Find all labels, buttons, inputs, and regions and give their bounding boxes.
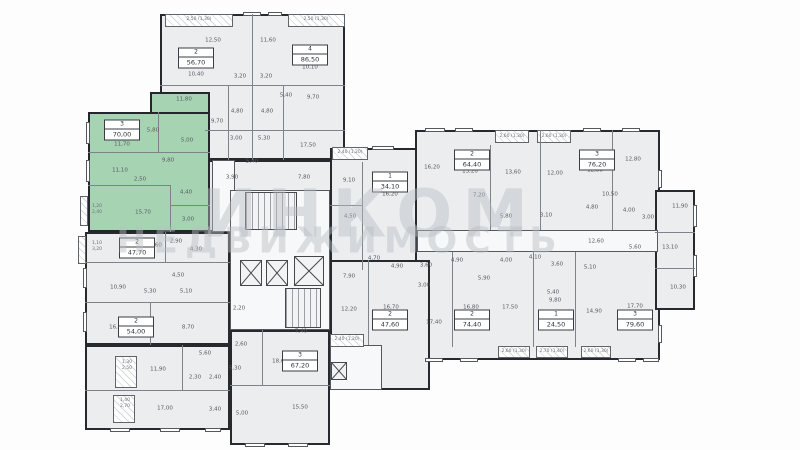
room-area-label: 5,80 <box>500 214 512 221</box>
elevator-icon <box>294 256 324 286</box>
window <box>658 325 662 343</box>
room-area-label: 2,30 <box>189 375 201 382</box>
room-area-label: 3,00 <box>230 136 242 143</box>
interior-wall <box>160 85 252 86</box>
room-area-label: 8,70 <box>182 325 194 332</box>
window <box>205 428 221 432</box>
apartment-label[interactable]: 256,70 <box>178 48 214 69</box>
interior-wall <box>170 205 210 206</box>
window <box>86 160 90 182</box>
elevator-icon <box>331 362 347 380</box>
room-area-label: 7,80 <box>298 175 310 182</box>
apartment-number: 2 <box>120 239 154 248</box>
apartment-area: 56,70 <box>179 58 213 68</box>
room-area-label: 11,60 <box>260 38 276 45</box>
interior-wall <box>612 130 613 230</box>
room-area-label: 2,90 <box>170 239 182 246</box>
apartment-area: 34,10 <box>373 182 407 192</box>
window <box>110 428 130 432</box>
apartment-number: 1 <box>373 173 407 182</box>
apartment-label[interactable]: 370,00 <box>104 120 140 141</box>
room-area-label: 12,50 <box>205 38 221 45</box>
window <box>160 428 180 432</box>
room-area-label: 4,50 <box>344 214 356 221</box>
room-area-label: 5,10 <box>584 265 596 272</box>
apartment-number: 3 <box>618 311 652 320</box>
window <box>455 128 473 132</box>
balcony-area-label: 1,30 2,50 <box>122 360 132 372</box>
room-area-label: 5,10 <box>180 289 192 296</box>
apartment-label[interactable]: 274,40 <box>454 310 490 331</box>
room-area-label: 7,20 <box>473 193 485 200</box>
balcony-area-label: 2,50 (1,30) <box>304 17 329 23</box>
room-area-label: 5,30 <box>144 289 156 296</box>
window <box>83 268 87 288</box>
room-area-label: 9,70 <box>307 95 319 102</box>
room-area-label: 12,60 <box>588 239 604 246</box>
room-area-label: 11,80 <box>176 97 192 104</box>
room-area-label: 2,60 <box>235 342 247 349</box>
room-area-label: 5,40 <box>280 93 292 100</box>
apartment-area: 79,60 <box>618 320 652 330</box>
window <box>693 255 697 277</box>
room-area-label: 3,90 <box>226 175 238 182</box>
window <box>268 12 282 16</box>
balcony-area-label: 2,60 (1,30) <box>502 349 527 355</box>
interior-wall <box>490 145 491 230</box>
room-area-label: 12,80 <box>625 157 641 164</box>
room-area-label: 13,10 <box>662 245 678 252</box>
balcony-area-label: 1,10 3,20 <box>92 241 102 253</box>
window <box>425 128 445 132</box>
balcony-area-label: 1,20 2,40 <box>92 204 102 216</box>
floor-plan-canvas: 10,4012,5011,803,203,2011,6010,105,409,7… <box>0 0 800 450</box>
elevator-icon <box>240 260 262 286</box>
balcony-area-label: 1,40 2,70 <box>120 398 130 410</box>
interior-wall <box>330 205 362 206</box>
room-area-label: 5,40 <box>547 290 559 297</box>
room-area-label: 17,50 <box>300 143 316 150</box>
room-area-label: 3,60 <box>551 262 563 269</box>
window <box>618 358 636 362</box>
balcony-area-label: 2,60 (1,30) <box>500 134 525 140</box>
apartment-label[interactable]: 264,40 <box>454 150 490 171</box>
room-area-label: 3,10 <box>540 213 552 220</box>
room-area-label: 10,50 <box>602 192 618 199</box>
room-area-label: 12,00 <box>547 171 563 178</box>
room-area-label: 4,80 <box>586 205 598 212</box>
window <box>245 443 265 447</box>
window <box>86 122 90 144</box>
balcony-area-label: 2,60 (1,30) <box>584 349 609 355</box>
apartment-number: 2 <box>179 49 213 58</box>
room-area-label: 4,10 <box>529 255 541 262</box>
room-area-label: 4,90 <box>451 258 463 265</box>
interior-wall <box>252 14 253 160</box>
stairs-icon <box>245 192 297 230</box>
room-area-label: 11,10 <box>112 168 128 175</box>
room-area-label: 3,20 <box>260 74 272 81</box>
room-area-label: 5,00 <box>181 138 193 145</box>
room-area-label: 11,90 <box>672 204 688 211</box>
room-area-label: 11,90 <box>150 367 166 374</box>
apartment-label[interactable]: 367,20 <box>282 351 318 372</box>
interior-wall <box>655 268 695 269</box>
room-area-label: 3,00 <box>642 215 654 222</box>
apartment-number: 2 <box>373 311 407 320</box>
window <box>288 443 308 447</box>
room-area-label: 10,10 <box>302 65 318 72</box>
balcony-area-label: 2,40 (1,20) <box>338 150 363 156</box>
window <box>583 128 601 132</box>
room-area-label: 4,90 <box>391 264 403 271</box>
room-area-label: 3,20 <box>234 74 246 81</box>
apartment-area: 47,70 <box>120 248 154 258</box>
balcony <box>78 236 86 264</box>
apartment-label[interactable]: 486,50 <box>292 45 328 66</box>
window <box>372 146 394 150</box>
window <box>460 358 478 362</box>
apartment-number: 3 <box>283 352 317 361</box>
apartment-label[interactable]: 376,20 <box>579 150 615 171</box>
apartment-area: 67,20 <box>283 361 317 371</box>
apartment-label[interactable]: 379,60 <box>617 310 653 331</box>
room-area-label: 5,80 <box>147 128 159 135</box>
apartment-label[interactable]: 247,60 <box>372 310 408 331</box>
window <box>643 358 659 362</box>
room-area-label: 7,40 <box>295 329 307 336</box>
balcony-area-label: 2,50 (1,30) <box>187 17 212 23</box>
interior-wall <box>452 252 453 347</box>
room-area-label: 4,00 <box>623 208 635 215</box>
room-area-label: 10,30 <box>670 285 686 292</box>
interior-wall <box>362 162 363 270</box>
room-area-label: 15,70 <box>135 210 151 217</box>
interior-wall <box>88 185 170 186</box>
room-area-label: 16,20 <box>424 165 440 172</box>
apartment-number: 2 <box>455 151 489 160</box>
interior-wall <box>165 232 166 262</box>
interior-wall <box>85 302 230 303</box>
interior-wall <box>85 262 230 263</box>
apartment-area: 24,50 <box>539 320 573 330</box>
interior-wall <box>205 130 345 131</box>
room-area-label: 9,70 <box>211 119 223 126</box>
room-area-label: 4,70 <box>368 256 380 263</box>
room-area-label: 4,00 <box>500 258 512 265</box>
room-area-label: 4,40 <box>180 190 192 197</box>
room-area-label: 10,40 <box>188 72 204 79</box>
room-area-label: 3,00 <box>182 217 194 224</box>
block-apartment-1-34 <box>330 148 418 270</box>
interior-wall <box>533 252 534 347</box>
room-area-label: 2,20 <box>233 306 245 313</box>
balcony-area-label: 2,60 (1,30) <box>542 134 567 140</box>
room-area-label: 3,60 <box>420 263 432 270</box>
apartment-number: 3 <box>105 121 139 130</box>
room-area-label: 13,60 <box>505 170 521 177</box>
apartment-number: 3 <box>580 151 614 160</box>
apartment-area: 47,60 <box>373 320 407 330</box>
window <box>658 170 662 188</box>
room-area-label: 4,50 <box>172 273 184 280</box>
room-area-label: 2,50 <box>134 177 146 184</box>
interior-wall <box>230 385 330 386</box>
room-area-label: 5,40 <box>246 159 258 166</box>
room-area-label: 4,80 <box>231 109 243 116</box>
interior-wall <box>88 152 210 153</box>
room-area-label: 5,60 <box>629 245 641 252</box>
interior-wall <box>368 260 369 345</box>
balcony <box>80 196 88 226</box>
room-area-label: 5,60 <box>199 351 211 358</box>
apartment-area: 70,00 <box>105 130 139 140</box>
room-area-label: 10,90 <box>110 285 126 292</box>
room-area-label: 5,30 <box>229 366 241 373</box>
room-area-label: 14,90 <box>586 309 602 316</box>
window <box>425 358 443 362</box>
room-area-label: 4,80 <box>261 109 273 116</box>
apartment-area: 76,20 <box>580 160 614 170</box>
room-area-label: 17,50 <box>502 305 518 312</box>
room-area-label: 17,00 <box>157 406 173 413</box>
apartment-area: 64,40 <box>455 160 489 170</box>
interior-wall <box>228 85 229 160</box>
apartment-number: 1 <box>539 311 573 320</box>
window <box>622 128 640 132</box>
balcony-area-label: 2,40 (1,20) <box>335 337 360 343</box>
room-area-label: 12,20 <box>341 307 357 314</box>
room-area-label: 7,90 <box>343 274 355 281</box>
room-area-label: 4,30 <box>190 247 202 254</box>
room-area-label: 5,00 <box>236 411 248 418</box>
apartment-label[interactable]: 134,10 <box>372 172 408 193</box>
window <box>83 312 87 332</box>
balcony-area-label: 2,70 (1,40) <box>540 349 565 355</box>
room-area-label: 3,00 <box>418 283 430 290</box>
apartment-area: 74,40 <box>455 320 489 330</box>
room-area-label: 3,40 <box>209 407 221 414</box>
stairs-icon <box>285 288 321 328</box>
room-area-label: 9,80 <box>549 298 561 305</box>
apartment-number: 2 <box>119 318 153 327</box>
apartment-label[interactable]: 247,70 <box>119 238 155 259</box>
interior-wall <box>252 85 345 86</box>
elevator-icon <box>266 260 288 286</box>
room-area-label: 16,20 <box>382 192 398 199</box>
apartment-area: 86,50 <box>293 55 327 65</box>
room-area-label: 2,40 <box>209 375 221 382</box>
apartment-number: 4 <box>293 46 327 55</box>
apartment-label[interactable]: 254,00 <box>118 317 154 338</box>
room-area-label: 9,10 <box>343 178 355 185</box>
interior-wall <box>85 390 230 391</box>
apartment-number: 2 <box>455 311 489 320</box>
room-area-label: 15,50 <box>292 405 308 412</box>
interior-wall <box>575 252 576 347</box>
room-area-label: 5,30 <box>258 136 270 143</box>
interior-wall <box>655 232 695 233</box>
apartment-label[interactable]: 124,50 <box>538 310 574 331</box>
apartment-area: 54,00 <box>119 327 153 337</box>
room-area-label: 5,90 <box>478 276 490 283</box>
block-bottom-left <box>85 345 230 430</box>
room-area-label: 17,40 <box>426 320 442 327</box>
interior-wall <box>262 330 263 385</box>
corridor-right-wing <box>417 230 658 252</box>
interior-wall <box>182 345 183 390</box>
interior-wall <box>170 185 171 232</box>
room-area-label: 9,80 <box>162 158 174 165</box>
room-area-label: 11,70 <box>114 142 130 149</box>
window <box>693 205 697 227</box>
